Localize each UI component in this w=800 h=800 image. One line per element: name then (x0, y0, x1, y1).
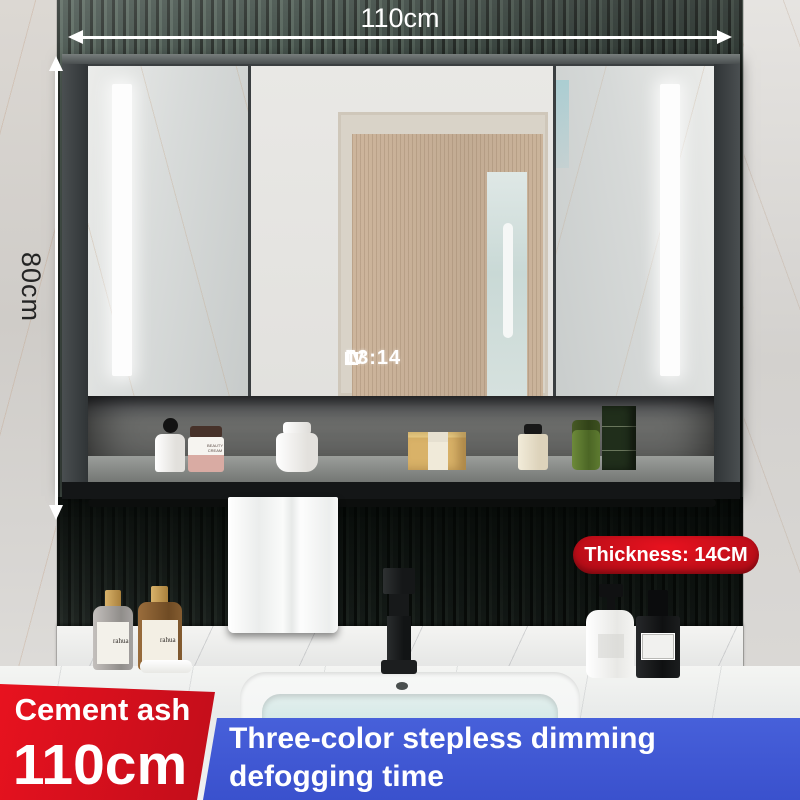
feature-banner-line2: defogging time (229, 760, 444, 794)
faucet-neck (389, 594, 409, 618)
white-towel (228, 497, 338, 633)
width-dimension-label: 110cm (320, 3, 480, 34)
color-size-panel: Cement ash 110cm (0, 678, 222, 800)
towel-bar (88, 499, 716, 507)
width-dimension-line (82, 36, 718, 39)
height-dimension-label: 80cm (10, 252, 46, 372)
soap-bar (140, 660, 192, 673)
shelf-white-bottle (155, 434, 185, 472)
ceramic-jar (276, 433, 318, 472)
display-mode: IV (345, 347, 366, 370)
cabinet-side-panel-right (714, 64, 740, 482)
green-jar (572, 420, 600, 470)
feature-banner-line1: Three-color stepless dimming (229, 722, 656, 756)
arrow-right-icon (717, 30, 732, 44)
kraft-box-label-band (428, 432, 448, 470)
arrow-down-icon (49, 505, 63, 520)
led-light-strip-left (112, 84, 132, 376)
green-product-box (602, 406, 636, 470)
thickness-badge: Thickness: 14CM (573, 536, 759, 574)
mirror-time-display: 13:14 IV (345, 346, 358, 370)
faucet-base (381, 660, 417, 674)
arrow-up-icon (49, 56, 63, 71)
cream-jar-label: BEAUTY CREAM (206, 443, 224, 453)
rahua-label-text: rahua (113, 637, 129, 645)
arrow-left-icon (68, 30, 83, 44)
cabinet-bottom-band (62, 482, 740, 499)
mirror-door-right (556, 66, 714, 396)
color-name-label: Cement ash (0, 692, 205, 728)
black-bottle-cap (648, 590, 668, 618)
height-dimension-line (55, 68, 58, 508)
reflected-door-handle (503, 223, 513, 338)
rahua-bottle2-label: rahua (142, 620, 178, 664)
sink-overflow-hole (396, 682, 408, 690)
black-bottle-label (641, 633, 675, 660)
cabinet-side-panel-left (62, 64, 88, 482)
small-cream-jar (518, 434, 548, 470)
pump-bottle-label (598, 634, 624, 658)
product-photo-scene: 13:14 IV BEAUTY CREAM rahua rahua 110cm (0, 0, 800, 800)
feature-banner: Three-color stepless dimming defogging t… (203, 718, 800, 800)
rahua-bottle1-label: rahua (97, 622, 129, 664)
faucet-handle (383, 568, 415, 594)
size-label: 110cm (0, 732, 200, 798)
rahua-label-text: rahua (160, 636, 176, 644)
cabinet-top-edge (62, 54, 740, 64)
led-light-strip-right (660, 84, 680, 376)
reflected-shower-glass (556, 80, 569, 168)
shelf-bottle-black-cap (163, 418, 178, 433)
faucet-body (387, 616, 411, 664)
beauty-cream-jar: BEAUTY CREAM (188, 437, 224, 472)
